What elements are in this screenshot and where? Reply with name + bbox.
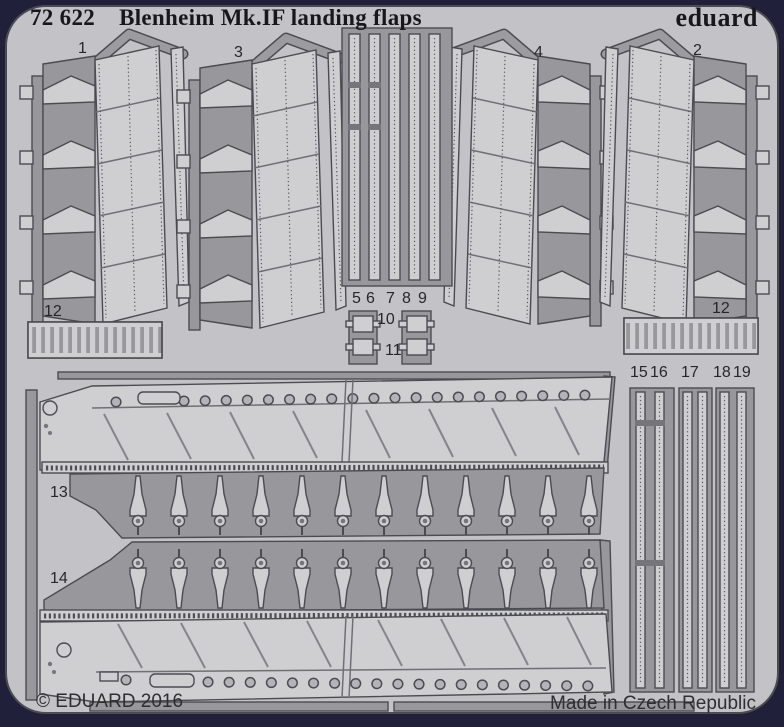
part-label-12-left: 12	[44, 303, 62, 320]
sheet-header: 72 622Blenheim Mk.IF landing flaps	[30, 5, 422, 31]
part-label-19: 19	[733, 364, 751, 381]
part-label-17: 17	[681, 364, 699, 381]
part-label-7: 7	[386, 290, 395, 307]
parts-15-19-etch	[630, 388, 754, 692]
part-label-9: 9	[418, 290, 427, 307]
part-label-13: 13	[50, 484, 68, 501]
part-label-15: 15	[630, 364, 648, 381]
product-image: 72 622Blenheim Mk.IF landing flaps eduar…	[0, 0, 784, 727]
part-label-16: 16	[650, 364, 668, 381]
brand-logo: eduard	[676, 3, 758, 33]
set-title: Blenheim Mk.IF landing flaps	[119, 5, 422, 30]
part-label-6: 6	[366, 290, 375, 307]
part-label-8: 8	[402, 290, 411, 307]
part-label-14: 14	[50, 570, 68, 587]
part-label-3: 3	[234, 44, 243, 61]
part-12-right-etch	[624, 318, 758, 354]
part-label-2: 2	[693, 42, 702, 59]
catalog-number: 72 622	[30, 5, 95, 30]
part-label-10: 10	[377, 311, 395, 328]
parts-5-9-etch	[342, 28, 452, 286]
part-label-4: 4	[534, 44, 543, 61]
copyright-text: © EDUARD 2016	[36, 691, 183, 713]
origin-text: Made in Czech Republic	[550, 693, 756, 715]
part-12-left-etch	[28, 322, 162, 358]
part-label-1: 1	[78, 40, 87, 57]
part-14-etch	[40, 540, 694, 711]
part-label-5: 5	[352, 290, 361, 307]
part-label-12-right: 12	[712, 300, 730, 317]
part-label-11: 11	[385, 342, 402, 359]
part-label-18: 18	[713, 364, 731, 381]
